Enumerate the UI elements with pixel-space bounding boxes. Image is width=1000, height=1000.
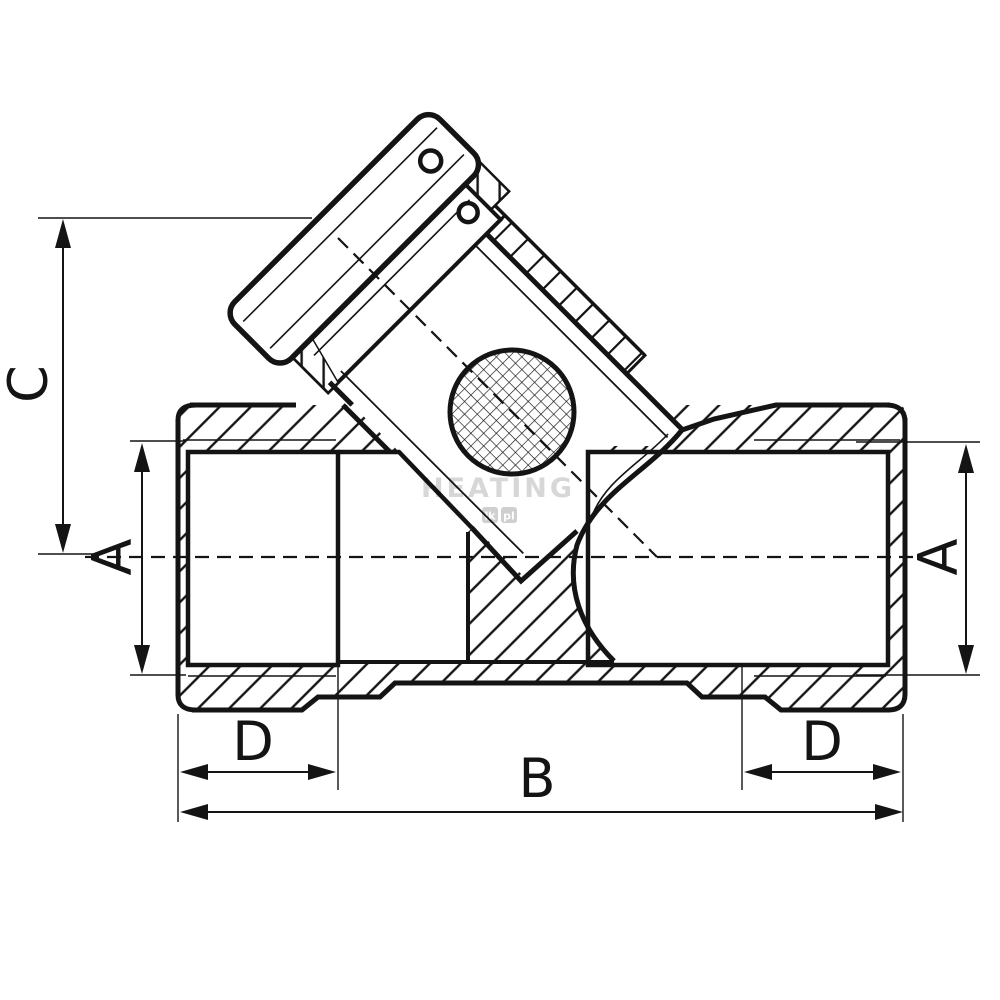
dimension-b-label: B xyxy=(518,747,555,810)
b-arrow-left xyxy=(180,804,208,820)
b-arrow-right xyxy=(875,804,903,820)
a-left-arrow-up xyxy=(134,443,150,472)
dimension-a-right-label: A xyxy=(907,538,970,575)
left-port-bore xyxy=(188,452,338,665)
dimension-c-label: C xyxy=(0,365,60,403)
y-strainer-technical-drawing: C A A D D B xyxy=(0,0,1000,1000)
d-right-arrow-left xyxy=(744,764,772,780)
dimension-d-right-label: D xyxy=(801,710,843,773)
c-arrow-down xyxy=(55,524,71,553)
dimension-b: B xyxy=(180,747,903,820)
d-left-arrow-right xyxy=(308,764,336,780)
drawing-canvas: C A A D D B xyxy=(0,0,1000,1000)
watermark-brand-text: HEATING xyxy=(421,473,575,504)
d-right-arrow-right xyxy=(873,764,901,780)
watermark-tag-right-text: pl xyxy=(503,510,515,523)
a-left-arrow-down xyxy=(134,645,150,674)
right-port-bore xyxy=(588,452,888,665)
dimension-a-left-label: A xyxy=(81,538,144,575)
a-right-arrow-down xyxy=(958,645,974,674)
c-arrow-up xyxy=(55,219,71,248)
watermark-tag-left-text: ik xyxy=(484,510,496,523)
dimension-a-left: A xyxy=(81,441,187,675)
a-right-arrow-up xyxy=(958,444,974,473)
watermark-separator: . xyxy=(497,511,501,524)
dimension-d-left-label: D xyxy=(232,710,274,773)
d-left-arrow-left xyxy=(180,764,208,780)
